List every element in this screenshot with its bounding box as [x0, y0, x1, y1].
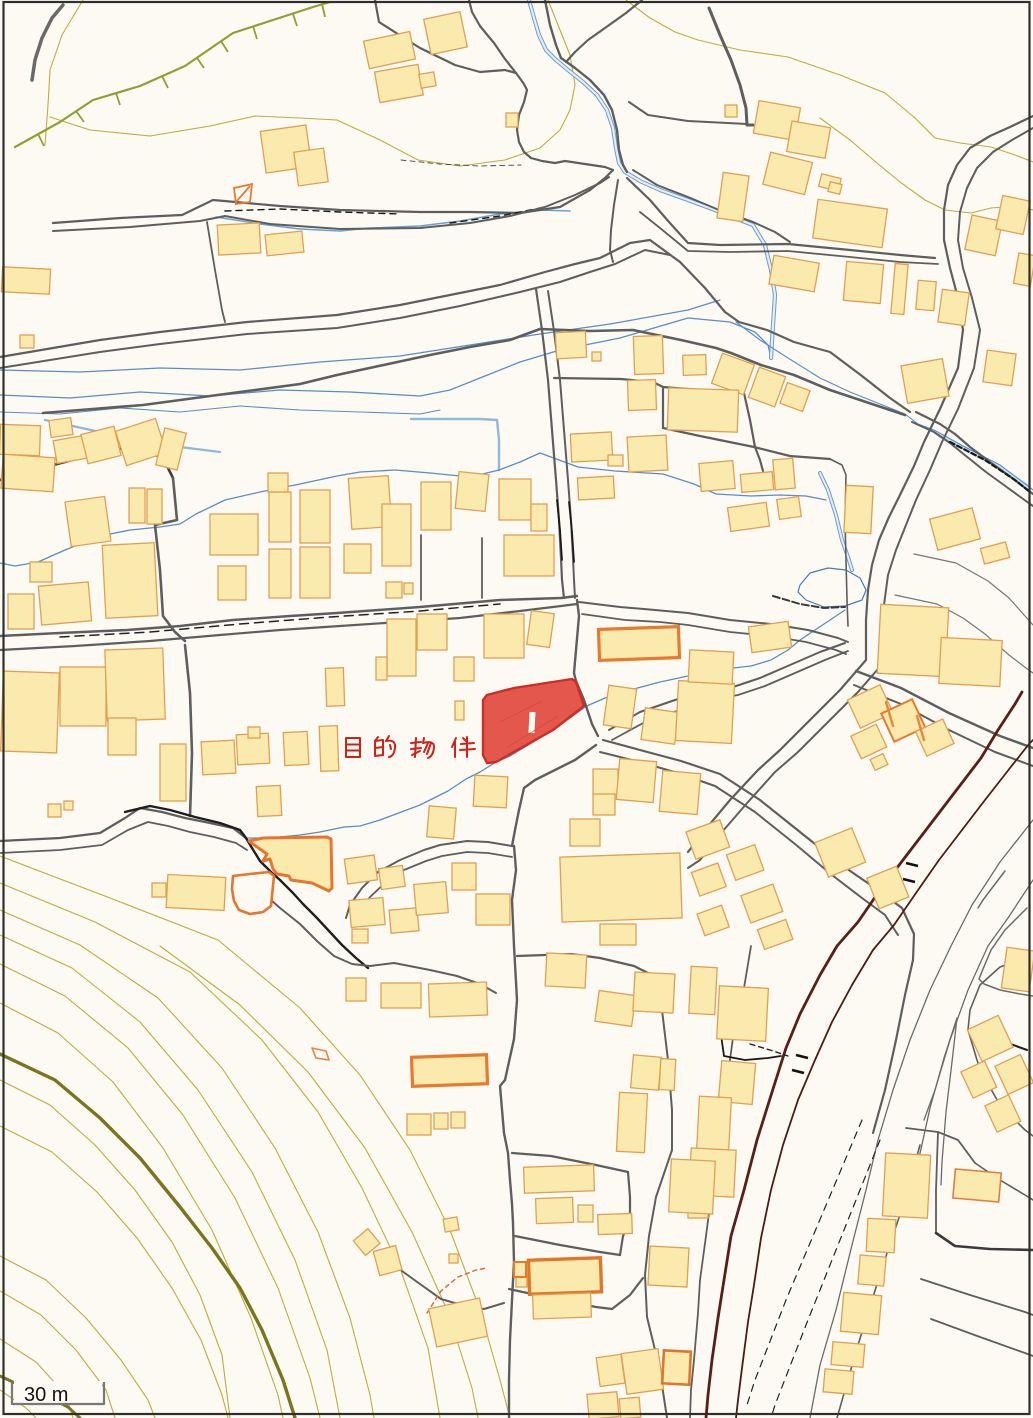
svg-text:30 m: 30 m	[24, 1384, 68, 1406]
